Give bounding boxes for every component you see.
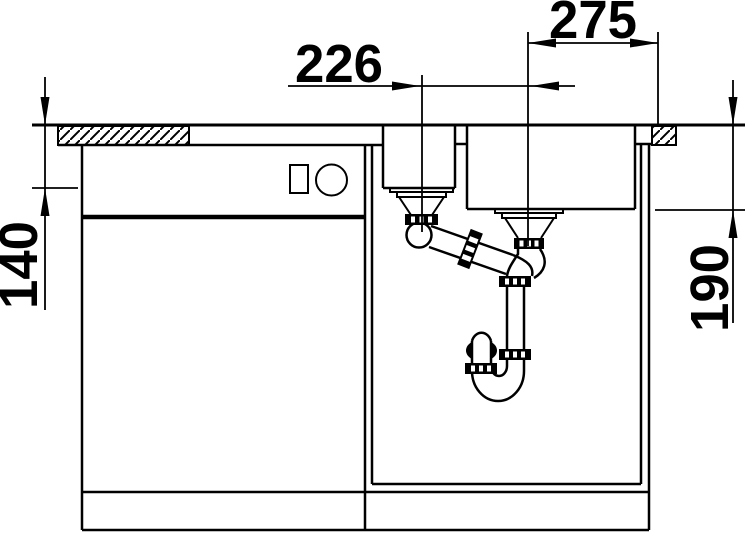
trap-top-nut	[499, 276, 531, 287]
sink-technical-drawing: 226 275 140 190	[0, 0, 750, 533]
trap-mid-nut	[499, 349, 531, 360]
countertop-left-section	[58, 126, 189, 145]
drawing-svg: 226 275 140 190	[0, 0, 750, 533]
countertop-right-section	[652, 126, 676, 145]
right-drain-locknut	[514, 238, 544, 249]
label-left-bowl-depth: 140	[0, 221, 49, 309]
label-right-bowl-depth: 190	[680, 244, 740, 332]
label-drain-spacing: 226	[295, 34, 383, 94]
trap-riser-nut	[465, 363, 497, 374]
label-drain-to-edge: 275	[549, 0, 637, 50]
